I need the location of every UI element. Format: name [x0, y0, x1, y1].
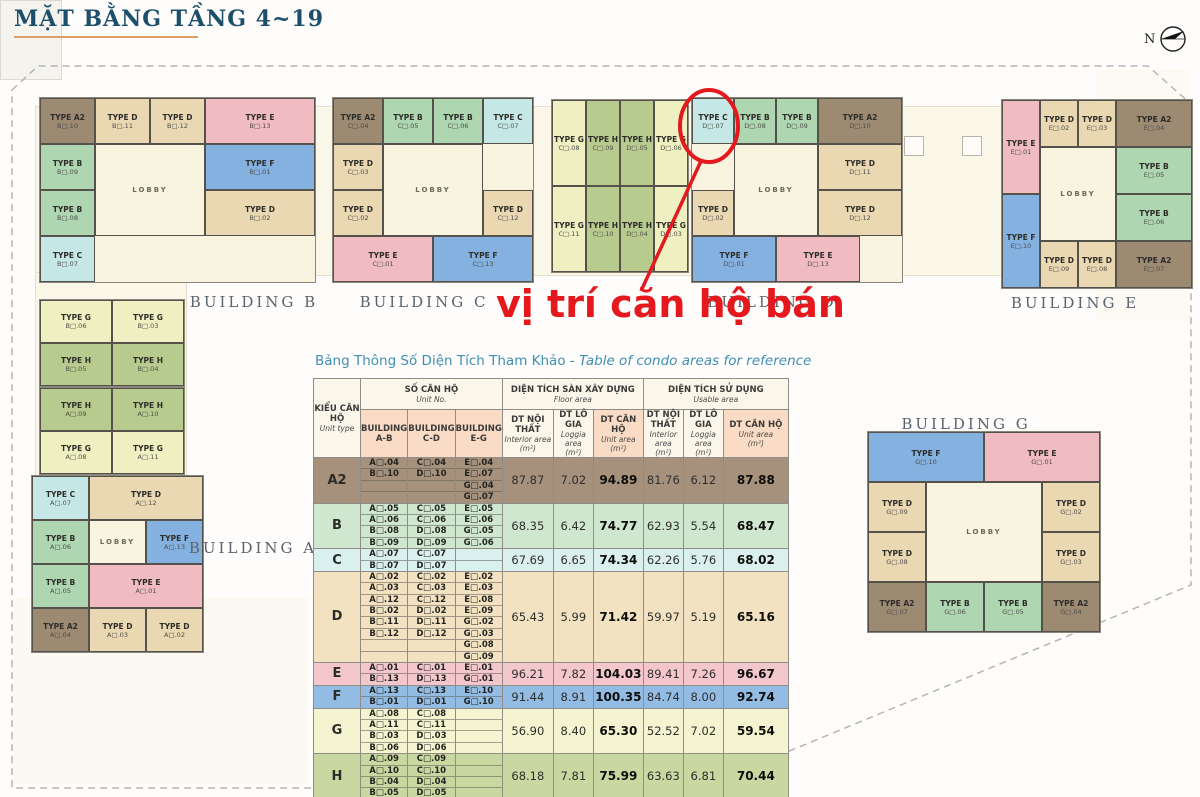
- unit-number: G□.02: [1060, 508, 1082, 516]
- subcol-loggia: DT LÔ GIALoggia area(m²): [553, 410, 593, 458]
- unit-block: TYPE A2B□.10: [40, 98, 95, 144]
- building-cluster-a-main: TYPE CA□.07TYPE DA□.12TYPE BA□.06LOBBYTY…: [32, 476, 203, 652]
- unit-number: A□.10: [138, 410, 159, 418]
- unit-type-label: TYPE B: [998, 599, 1028, 608]
- unit-type-label: TYPE G: [133, 313, 163, 322]
- cell-unit-type: D: [314, 571, 361, 662]
- cell-units-cd: C□.07D□.07: [408, 549, 455, 572]
- condo-area-table: KIỂU CĂN HỘUnit typeSỐ CĂN HỘUnit No.DIỆ…: [313, 378, 789, 797]
- unit-type-label: TYPE D: [493, 205, 523, 214]
- unit-block: TYPE CC□.07: [483, 98, 533, 144]
- unit-number: D□.10: [849, 122, 870, 130]
- building-cluster-c-main: TYPE A2C□.04TYPE BC□.05TYPE BC□.06TYPE C…: [333, 98, 533, 282]
- unit-block: TYPE FG□.10: [868, 432, 984, 482]
- unit-number: E□.07: [1144, 265, 1165, 273]
- unit-number: E□.08: [1087, 265, 1108, 273]
- cell-units-cd: C□.09C□.10D□.04D□.05: [408, 754, 455, 797]
- cell-unit-type: H: [314, 754, 361, 797]
- cell-floor-unit: 75.99: [593, 754, 643, 797]
- cell-usable-unit: 87.88: [723, 458, 788, 504]
- unit-block: TYPE BA□.05: [32, 564, 89, 608]
- unit-block: TYPE DB□.02: [205, 190, 315, 236]
- unit-number: G□.04: [1060, 608, 1082, 616]
- cell-units-ab: A□.05A□.06B□.08B□.09: [361, 503, 408, 549]
- subcol-loggia: DT LÔ GIALoggia area(m²): [683, 410, 723, 458]
- unit-type-label: TYPE E: [369, 251, 398, 260]
- cell-units-cd: C□.05C□.06D□.08D□.09: [408, 503, 455, 549]
- unit-number: B□.12: [167, 122, 188, 130]
- cell-unit-type: E: [314, 663, 361, 686]
- title-underline: [14, 36, 198, 38]
- group-floor-area: DIỆN TÍCH SÀN XÂY DỰNGFloor area: [502, 379, 643, 410]
- cell-units-cd: C□.02C□.03C□.12D□.02D□.11D□.12: [408, 571, 455, 662]
- subcol-interior: DT NỘI THẤTInterior area(m²): [643, 410, 683, 458]
- unit-block: TYPE GA□.08: [40, 431, 112, 474]
- unit-type-label: TYPE B: [1139, 162, 1169, 171]
- compass-icon: [1158, 24, 1188, 54]
- cell-floor-loggia: 6.42: [553, 503, 593, 549]
- unit-number: D□.13: [807, 260, 828, 268]
- unit-type-label: TYPE B: [443, 113, 473, 122]
- unit-number: A□.05: [50, 587, 71, 595]
- cell-usable-unit: 68.02: [723, 549, 788, 572]
- cell-units-cd: C□.08C□.11D□.03D□.06: [408, 708, 455, 754]
- unit-block: TYPE BE□.06: [1116, 194, 1192, 241]
- cell-usable-loggia: 5.19: [683, 571, 723, 662]
- cell-floor-loggia: 8.91: [553, 685, 593, 708]
- unit-block: TYPE GD□.03: [654, 186, 688, 272]
- subcol-interior: DT NỘI THẤTInterior area(m²): [502, 410, 553, 458]
- cell-floor-unit: 94.89: [593, 458, 643, 504]
- unit-number: D□.05: [626, 144, 647, 152]
- unit-block: TYPE GC□.11: [552, 186, 586, 272]
- cell-units-eg: E□.02E□.03E□.08E□.09G□.02G□.03G□.08G□.09: [455, 571, 502, 662]
- unit-type-label: TYPE E: [132, 578, 161, 587]
- unit-type-label: TYPE G: [554, 135, 584, 144]
- cell-floor-interior: 96.21: [502, 663, 553, 686]
- cell-floor-unit: 74.34: [593, 549, 643, 572]
- unit-type-label: TYPE A2: [1054, 599, 1089, 608]
- unit-number: D□.03: [660, 230, 681, 238]
- unit-block: TYPE DE□.02: [1040, 100, 1078, 147]
- building-cluster-b-main: TYPE A2B□.10TYPE DB□.11TYPE DB□.12TYPE E…: [40, 98, 315, 282]
- unit-type-label: TYPE A2: [1137, 256, 1172, 265]
- unit-number: B□.10: [57, 122, 78, 130]
- cell-unit-type: G: [314, 708, 361, 754]
- unit-number: B□.07: [57, 260, 78, 268]
- unit-block: TYPE BD□.08: [734, 98, 776, 144]
- building-cluster-e-main: TYPE EE□.01TYPE DE□.02TYPE DE□.03TYPE A2…: [1002, 100, 1192, 288]
- unit-number: C□.11: [558, 230, 579, 238]
- cell-floor-interior: 56.90: [502, 708, 553, 754]
- unit-number: B□.04: [138, 365, 159, 373]
- unit-type-label: TYPE B: [1139, 209, 1169, 218]
- unit-type-label: LOBBY: [758, 186, 794, 195]
- cell-unit-type: F: [314, 685, 361, 708]
- table-title: Bảng Thông Số Diện Tích Tham Khảo - Tabl…: [315, 353, 811, 369]
- unit-block: TYPE DC□.03: [333, 144, 383, 190]
- building-label: BUILDING G: [876, 415, 1056, 433]
- unit-type-label: TYPE F: [720, 251, 749, 260]
- cell-floor-interior: 87.87: [502, 458, 553, 504]
- unit-type-label: TYPE D: [845, 205, 875, 214]
- unit-type-label: TYPE D: [1082, 115, 1112, 124]
- unit-type-label: TYPE D: [107, 113, 137, 122]
- unit-number: B□.11: [112, 122, 133, 130]
- unit-block: TYPE GC□.08: [552, 100, 586, 186]
- cell-usable-loggia: 8.00: [683, 685, 723, 708]
- unit-type-label: LOBBY: [1060, 190, 1096, 199]
- unit-type-label: LOBBY: [415, 186, 451, 195]
- unit-number: C□.06: [447, 122, 468, 130]
- unit-number: C□.01: [372, 260, 393, 268]
- table-body: A2A□.04B□.10 C□.04D□.10 E□.04E□.07G□.04G…: [314, 458, 789, 797]
- unit-type-label: TYPE D: [1056, 499, 1086, 508]
- unit-type-label: TYPE D: [845, 159, 875, 168]
- unit-block: TYPE HA□.09: [40, 388, 112, 431]
- cell-floor-loggia: 7.82: [553, 663, 593, 686]
- lobby-block: LOBBY: [383, 144, 483, 236]
- cell-usable-loggia: 7.26: [683, 663, 723, 686]
- table-row: A2A□.04B□.10 C□.04D□.10 E□.04E□.07G□.04G…: [314, 458, 789, 504]
- unit-number: G□.03: [1060, 558, 1082, 566]
- subcol-unit-area: DT CĂN HỘUnit area(m²): [723, 410, 788, 458]
- unit-block: TYPE DA□.03: [89, 608, 146, 652]
- unit-type-label: TYPE E: [804, 251, 833, 260]
- unit-type-label: TYPE A2: [1137, 115, 1172, 124]
- annotation-text: vị trí căn hộ bán: [496, 282, 826, 326]
- unit-block: TYPE BG□.05: [984, 582, 1042, 632]
- unit-type-label: TYPE G: [554, 221, 584, 230]
- unit-number: A□.03: [107, 631, 128, 639]
- unit-block: TYPE HC□.09: [586, 100, 620, 186]
- unit-type-label: TYPE A2: [880, 599, 915, 608]
- cell-usable-unit: 59.54: [723, 708, 788, 754]
- unit-number: B□.06: [66, 322, 87, 330]
- cell-usable-interior: 62.26: [643, 549, 683, 572]
- unit-type-label: TYPE H: [622, 221, 652, 230]
- page-title: MẶT BẰNG TẦNG 4~19: [14, 6, 324, 32]
- unit-type-label: TYPE E: [1007, 139, 1036, 148]
- building-cluster-d-main: TYPE CD□.07TYPE BD□.08TYPE BD□.09TYPE A2…: [692, 98, 902, 282]
- unit-block: TYPE DD□.02: [692, 190, 734, 236]
- unit-number: D□.01: [723, 260, 744, 268]
- unit-number: B□.03: [138, 322, 159, 330]
- subcol-building: BUILDING C-D: [408, 410, 455, 458]
- cell-units-ab: A□.01B□.13: [361, 663, 408, 686]
- unit-block: TYPE CB□.07: [40, 236, 95, 282]
- unit-number: B□.02: [250, 214, 271, 222]
- subcol-unit-area: DT CĂN HỘUnit area(m²): [593, 410, 643, 458]
- unit-block: TYPE A2G□.07: [868, 582, 926, 632]
- unit-block: TYPE BE□.05: [1116, 147, 1192, 194]
- unit-type-label: TYPE D: [343, 205, 373, 214]
- cell-units-eg: E□.10G□.10: [455, 685, 502, 708]
- unit-block: TYPE HC□.10: [586, 186, 620, 272]
- cell-usable-unit: 92.74: [723, 685, 788, 708]
- unit-block: TYPE DE□.09: [1040, 241, 1078, 288]
- table-row: EA□.01B□.13C□.01D□.13E□.01G□.0196.217.82…: [314, 663, 789, 686]
- unit-number: E□.10: [1011, 242, 1032, 250]
- unit-number: B□.13: [250, 122, 271, 130]
- building-cluster-mid-gh: TYPE GC□.08TYPE HC□.09TYPE HD□.05TYPE GD…: [552, 100, 688, 272]
- unit-block: TYPE DB□.11: [95, 98, 150, 144]
- unit-type-label: TYPE F: [469, 251, 498, 260]
- unit-block: TYPE DA□.12: [89, 476, 203, 520]
- unit-type-label: TYPE H: [622, 135, 652, 144]
- unit-block: TYPE GD□.06: [654, 100, 688, 186]
- unit-type-label: TYPE C: [493, 113, 522, 122]
- cell-usable-unit: 70.44: [723, 754, 788, 797]
- unit-number: E□.01: [1011, 148, 1032, 156]
- cell-floor-loggia: 7.02: [553, 458, 593, 504]
- unit-type-label: TYPE H: [133, 356, 163, 365]
- unit-number: G□.05: [1002, 608, 1024, 616]
- unit-type-label: TYPE E: [1028, 449, 1057, 458]
- unit-type-label: TYPE A2: [341, 113, 376, 122]
- unit-type-label: TYPE D: [882, 549, 912, 558]
- unit-type-label: TYPE B: [46, 534, 76, 543]
- unit-block: TYPE GA□.11: [112, 431, 184, 474]
- table-row: GA□.08A□.11B□.03B□.06C□.08C□.11D□.03D□.0…: [314, 708, 789, 754]
- unit-block: TYPE HD□.05: [620, 100, 654, 186]
- cell-units-ab: A□.13B□.01: [361, 685, 408, 708]
- unit-number: D□.09: [786, 122, 807, 130]
- unit-block: TYPE GB□.06: [40, 300, 112, 343]
- unit-number: D□.08: [744, 122, 765, 130]
- unit-number: G□.08: [886, 558, 908, 566]
- vent-shaft: [904, 136, 924, 156]
- unit-type-label: TYPE C: [698, 113, 727, 122]
- unit-number: E□.06: [1144, 218, 1165, 226]
- unit-number: B□.05: [66, 365, 87, 373]
- unit-type-label: LOBBY: [100, 538, 136, 547]
- unit-number: C□.03: [347, 168, 368, 176]
- unit-block: TYPE HB□.05: [40, 343, 112, 386]
- building-label: BUILDING E: [985, 294, 1165, 312]
- unit-block: TYPE DG□.08: [868, 532, 926, 582]
- table-row: FA□.13B□.01C□.13D□.01E□.10G□.1091.448.91…: [314, 685, 789, 708]
- cell-units-cd: C□.13D□.01: [408, 685, 455, 708]
- unit-number: A□.12: [136, 499, 157, 507]
- cell-unit-type: C: [314, 549, 361, 572]
- cell-usable-unit: 68.47: [723, 503, 788, 549]
- unit-number: A□.04: [50, 631, 71, 639]
- vent-shaft: [962, 136, 982, 156]
- unit-number: A□.09: [66, 410, 87, 418]
- unit-type-label: TYPE F: [1007, 233, 1036, 242]
- unit-type-label: TYPE B: [46, 578, 76, 587]
- unit-type-label: TYPE G: [61, 444, 91, 453]
- north-label: N: [1144, 32, 1155, 47]
- unit-number: A□.02: [164, 631, 185, 639]
- cell-usable-interior: 63.63: [643, 754, 683, 797]
- unit-block: TYPE DD□.11: [818, 144, 902, 190]
- unit-block: TYPE DA□.02: [146, 608, 203, 652]
- unit-type-label: TYPE E: [246, 113, 275, 122]
- cell-units-ab: A□.07B□.07: [361, 549, 408, 572]
- unit-block: TYPE FC□.13: [433, 236, 533, 282]
- unit-block: TYPE BC□.06: [433, 98, 483, 144]
- cell-floor-unit: 104.03: [593, 663, 643, 686]
- unit-number: C□.02: [347, 214, 368, 222]
- unit-block: TYPE HD□.04: [620, 186, 654, 272]
- unit-block: TYPE DG□.03: [1042, 532, 1100, 582]
- building-cluster-a-annex: TYPE HA□.09TYPE HA□.10TYPE GA□.08TYPE GA…: [40, 388, 184, 474]
- cell-floor-interior: 68.18: [502, 754, 553, 797]
- cell-units-ab: A□.08A□.11B□.03B□.06: [361, 708, 408, 754]
- unit-block: TYPE CA□.07: [32, 476, 89, 520]
- unit-block: TYPE FB□.01: [205, 144, 315, 190]
- cell-usable-loggia: 6.81: [683, 754, 723, 797]
- unit-type-label: TYPE B: [740, 113, 770, 122]
- unit-number: C□.04: [347, 122, 368, 130]
- cell-usable-interior: 89.41: [643, 663, 683, 686]
- unit-type-label: TYPE D: [159, 622, 189, 631]
- floorplan-sheet: TYPE A2B□.10TYPE DB□.11TYPE DB□.12TYPE E…: [0, 0, 1200, 797]
- unit-block: TYPE A2G□.04: [1042, 582, 1100, 632]
- unit-block: TYPE EB□.13: [205, 98, 315, 144]
- unit-type-label: TYPE G: [133, 444, 163, 453]
- building-cluster-g-main: TYPE FG□.10TYPE EG□.01TYPE DG□.09LOBBYTY…: [868, 432, 1100, 632]
- unit-type-label: TYPE F: [912, 449, 941, 458]
- building-label: BUILDING B: [164, 293, 344, 311]
- unit-type-label: TYPE D: [882, 499, 912, 508]
- unit-type-label: TYPE C: [46, 490, 75, 499]
- cell-usable-loggia: 5.76: [683, 549, 723, 572]
- table-header: KIỂU CĂN HỘUnit typeSỐ CĂN HỘUnit No.DIỆ…: [314, 379, 789, 458]
- cell-floor-loggia: 7.81: [553, 754, 593, 797]
- cell-floor-loggia: 8.40: [553, 708, 593, 754]
- cell-usable-loggia: 7.02: [683, 708, 723, 754]
- unit-type-label: TYPE C: [53, 251, 82, 260]
- unit-number: D□.07: [702, 122, 723, 130]
- subcol-building: BUILDING E-G: [455, 410, 502, 458]
- unit-block: TYPE A2C□.04: [333, 98, 383, 144]
- unit-type-label: TYPE D: [1044, 115, 1074, 124]
- cell-units-eg: E□.04E□.07G□.04G□.07: [455, 458, 502, 504]
- unit-type-label: TYPE A2: [50, 113, 85, 122]
- unit-number: D□.02: [702, 214, 723, 222]
- cell-units-ab: A□.02A□.03A□.12B□.02B□.11B□.12: [361, 571, 408, 662]
- unit-block: TYPE DG□.02: [1042, 482, 1100, 532]
- unit-block: TYPE HB□.04: [112, 343, 184, 386]
- unit-block: TYPE BA□.06: [32, 520, 89, 564]
- unit-number: E□.03: [1087, 124, 1108, 132]
- lobby-block: LOBBY: [95, 144, 205, 236]
- unit-number: B□.09: [57, 168, 78, 176]
- unit-block: TYPE A2A□.04: [32, 608, 89, 652]
- unit-block: TYPE EG□.01: [984, 432, 1100, 482]
- unit-type-label: TYPE H: [133, 401, 163, 410]
- cell-usable-interior: 62.93: [643, 503, 683, 549]
- unit-block: TYPE A2D□.10: [818, 98, 902, 144]
- unit-block: TYPE EA□.01: [89, 564, 203, 608]
- unit-type-label: TYPE H: [588, 135, 618, 144]
- unit-block: TYPE EC□.01: [333, 236, 433, 282]
- unit-number: C□.10: [592, 230, 613, 238]
- col-unit-type: KIỂU CĂN HỘUnit type: [314, 379, 361, 458]
- unit-number: C□.12: [497, 214, 518, 222]
- cell-units-ab: A□.09A□.10B□.04B□.05: [361, 754, 408, 797]
- unit-number: C□.07: [497, 122, 518, 130]
- unit-block: TYPE DC□.02: [333, 190, 383, 236]
- unit-number: A□.11: [138, 453, 159, 461]
- unit-block: TYPE BG□.06: [926, 582, 984, 632]
- unit-block: TYPE DD□.12: [818, 190, 902, 236]
- unit-type-label: TYPE G: [656, 135, 686, 144]
- unit-number: A□.01: [136, 587, 157, 595]
- table-row: DA□.02A□.03A□.12B□.02B□.11B□.12 C□.02C□.…: [314, 571, 789, 662]
- unit-number: A□.07: [50, 499, 71, 507]
- unit-type-label: TYPE D: [102, 622, 132, 631]
- subcol-building: BUILDING A-B: [361, 410, 408, 458]
- cell-usable-interior: 52.52: [643, 708, 683, 754]
- unit-type-label: TYPE G: [656, 221, 686, 230]
- cell-units-eg: [455, 708, 502, 754]
- unit-number: D□.11: [849, 168, 870, 176]
- unit-number: D□.06: [660, 144, 681, 152]
- cell-floor-unit: 74.77: [593, 503, 643, 549]
- cell-units-cd: C□.04D□.10: [408, 458, 455, 504]
- unit-block: TYPE DE□.03: [1078, 100, 1116, 147]
- north-indicator: N: [1144, 24, 1188, 54]
- cell-usable-unit: 65.16: [723, 571, 788, 662]
- unit-type-label: TYPE D: [162, 113, 192, 122]
- unit-type-label: TYPE F: [246, 159, 275, 168]
- unit-number: C□.08: [558, 144, 579, 152]
- unit-type-label: TYPE B: [53, 205, 83, 214]
- unit-block: TYPE A2E□.04: [1116, 100, 1192, 147]
- unit-number: E□.02: [1049, 124, 1070, 132]
- cell-floor-interior: 91.44: [502, 685, 553, 708]
- lobby-block: LOBBY: [926, 482, 1042, 582]
- unit-type-label: TYPE H: [61, 401, 91, 410]
- unit-block: TYPE DE□.08: [1078, 241, 1116, 288]
- unit-number: E□.05: [1144, 171, 1165, 179]
- table-title-vi: Bảng Thông Số Diện Tích Tham Khảo: [315, 353, 570, 369]
- unit-type-label: TYPE H: [588, 221, 618, 230]
- cell-floor-interior: 65.43: [502, 571, 553, 662]
- unit-number: C□.09: [592, 144, 613, 152]
- cell-units-eg: [455, 754, 502, 797]
- unit-type-label: TYPE D: [698, 205, 728, 214]
- table-title-en: - Table of condo areas for reference: [570, 353, 811, 369]
- cell-usable-interior: 59.97: [643, 571, 683, 662]
- cell-units-eg: [455, 549, 502, 572]
- unit-type-label: TYPE D: [245, 205, 275, 214]
- unit-block: TYPE HA□.10: [112, 388, 184, 431]
- unit-number: C□.05: [397, 122, 418, 130]
- cell-floor-unit: 71.42: [593, 571, 643, 662]
- cell-usable-loggia: 5.54: [683, 503, 723, 549]
- unit-type-label: LOBBY: [966, 528, 1002, 537]
- cell-usable-interior: 84.74: [643, 685, 683, 708]
- unit-block: TYPE BD□.09: [776, 98, 818, 144]
- unit-block: TYPE BB□.09: [40, 144, 95, 190]
- unit-block: TYPE FE□.10: [1002, 194, 1040, 288]
- unit-type-label: TYPE H: [61, 356, 91, 365]
- unit-number: D□.12: [849, 214, 870, 222]
- unit-type-label: TYPE B: [53, 159, 83, 168]
- table-row: HA□.09A□.10B□.04B□.05C□.09C□.10D□.04D□.0…: [314, 754, 789, 797]
- unit-number: E□.09: [1049, 265, 1070, 273]
- unit-number: G□.07: [886, 608, 908, 616]
- cell-usable-unit: 96.67: [723, 663, 788, 686]
- unit-type-label: LOBBY: [132, 186, 168, 195]
- unit-number: E□.04: [1144, 124, 1165, 132]
- cell-floor-loggia: 6.65: [553, 549, 593, 572]
